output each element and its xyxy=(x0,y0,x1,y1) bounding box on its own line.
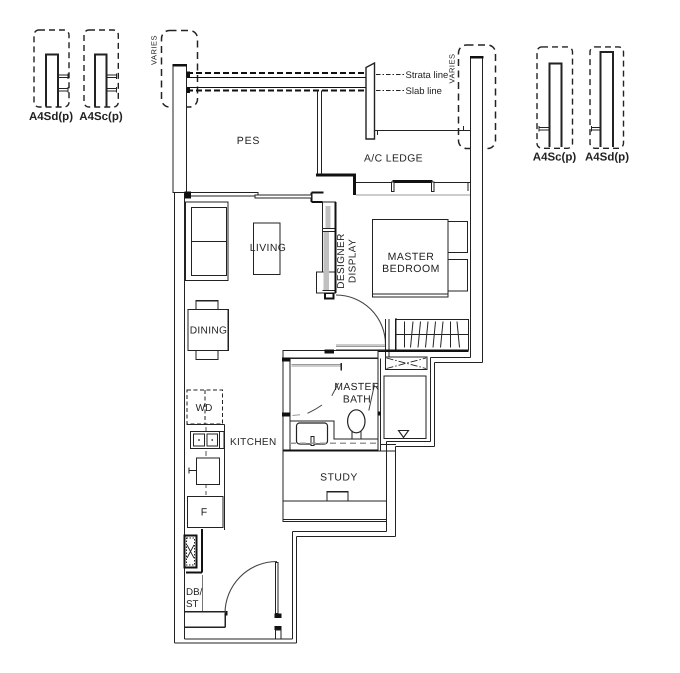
svg-text:A4Sc(p): A4Sc(p) xyxy=(79,111,123,123)
svg-text:MASTER: MASTER xyxy=(334,382,379,393)
svg-text:DINING: DINING xyxy=(190,326,227,337)
svg-text:Strata line: Strata line xyxy=(406,70,449,81)
svg-text:DISPLAY: DISPLAY xyxy=(348,239,359,283)
svg-text:Slab line: Slab line xyxy=(406,86,442,97)
svg-text:DB/: DB/ xyxy=(186,587,203,598)
svg-text:F: F xyxy=(201,507,207,519)
svg-text:VARIES: VARIES xyxy=(150,35,159,65)
svg-text:A4Sd(p): A4Sd(p) xyxy=(29,111,73,123)
svg-text:KITCHEN: KITCHEN xyxy=(230,437,277,448)
svg-text:ST: ST xyxy=(186,599,199,610)
svg-text:A/C LEDGE: A/C LEDGE xyxy=(364,154,423,165)
svg-text:PES: PES xyxy=(237,135,260,147)
svg-text:WD: WD xyxy=(196,403,213,414)
svg-text:BATH: BATH xyxy=(343,395,371,406)
svg-text:BEDROOM: BEDROOM xyxy=(382,263,440,275)
svg-text:MASTER: MASTER xyxy=(388,251,435,263)
svg-text:VARIES: VARIES xyxy=(448,54,457,84)
svg-text:LIVING: LIVING xyxy=(250,243,286,254)
svg-text:A4Sd(p): A4Sd(p) xyxy=(585,152,629,164)
svg-text:STUDY: STUDY xyxy=(320,473,358,484)
svg-text:A4Sc(p): A4Sc(p) xyxy=(533,152,577,164)
svg-text:DESIGNER: DESIGNER xyxy=(336,233,347,288)
